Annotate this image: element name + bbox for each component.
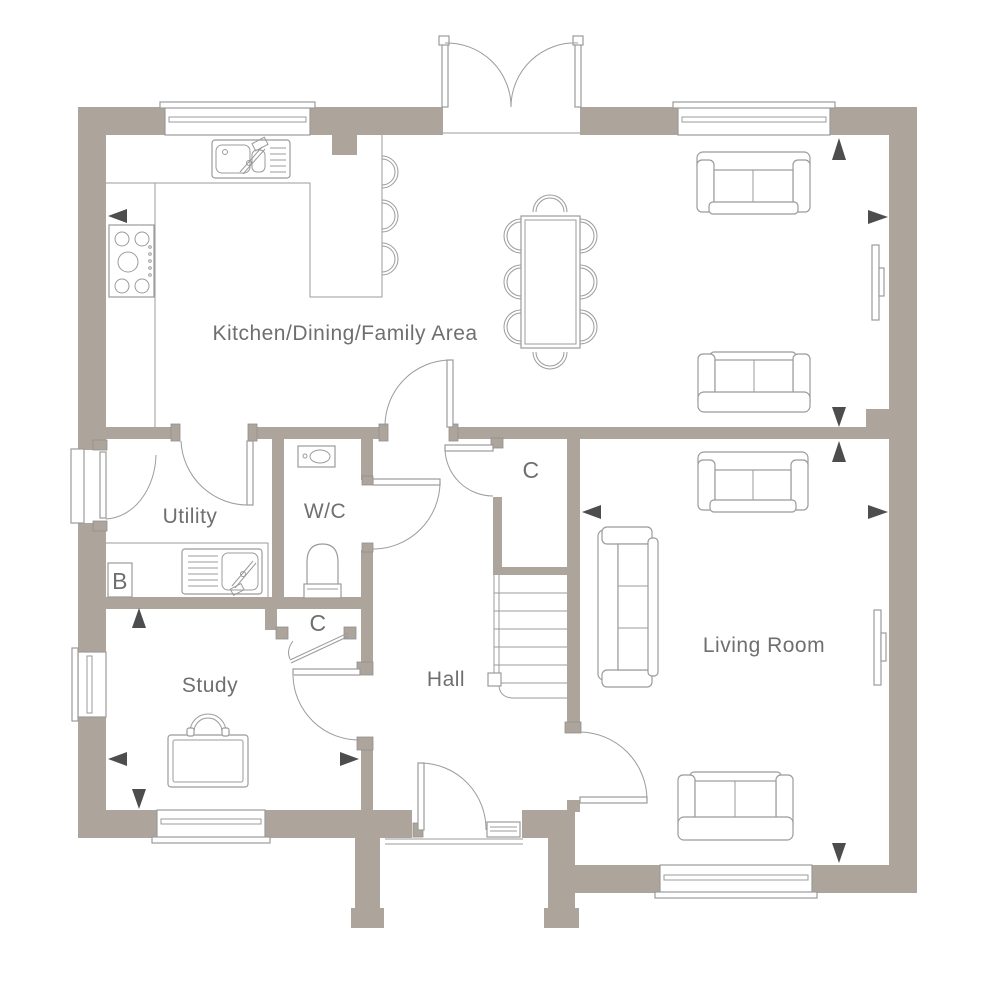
dimension-arrow-left-study [108,752,127,766]
study-door [293,662,373,750]
dimension-arrow-right-family [868,210,888,224]
dimension-arrow-down-living [832,843,846,863]
study-desk [168,735,248,787]
staircase [488,575,567,698]
french-doors [439,36,583,133]
dimension-arrow-left-living [582,505,601,519]
utility-sink [182,549,262,595]
stair-newel [488,673,501,686]
dimension-arrow-right-study [340,752,359,766]
hall-label: Hall [427,668,465,691]
study-label: Study [182,674,238,697]
wc-basin [298,446,335,467]
dimension-arrow-down-study [132,789,146,809]
family-tv [872,245,884,320]
kitchen-sink [212,137,290,178]
dimension-arrow-right-living [868,505,888,519]
dimension-arrow-down-family [832,407,846,427]
living-sofa-left [598,527,658,687]
living-room-label: Living Room [703,634,825,657]
utility-internal-door [171,424,257,505]
kitchen-window [160,102,315,135]
living-sofa-top [698,452,808,512]
kitchen-label: Kitchen/Dining/Family Area [212,322,477,345]
family-sofa-bottom [698,352,810,412]
living-room-door [565,722,647,803]
dimension-arrow-up-living [832,441,846,462]
study-cupboard-label: C [309,610,326,636]
wc-label: W/C [304,500,346,523]
family-area-window [673,102,835,135]
dimension-arrow-up-study [132,608,146,628]
family-sofa-top [697,152,810,214]
dimension-arrow-left-kitchen [108,209,127,223]
kitchen-hall-door [379,360,458,441]
doors [71,36,647,844]
study-chair [187,714,229,736]
study-side-window [72,648,106,721]
hob [109,225,154,297]
living-sofa-bottom [678,772,793,840]
living-tv [874,610,886,685]
stair-treads [494,593,567,683]
boiler-label: B [112,568,128,594]
hall-cupboard-label: C [522,457,539,483]
living-room-window [655,865,817,898]
utility-external-door [71,440,156,531]
study-front-window [152,810,270,843]
floor-plan-drawing: B Kitchen/Dining/Family [0,0,1000,1000]
dimension-arrow-up-family [832,138,846,160]
front-door-sidelight [487,822,520,837]
dining-table [504,195,597,369]
floor-plan-page: B Kitchen/Dining/Family [0,0,1000,1000]
boiler: B [108,563,132,597]
breakfast-bar-stools [382,156,398,275]
mid-wall-pier [866,409,890,427]
wc-toilet [304,544,341,598]
utility-label: Utility [163,505,218,528]
kitchen-pier [332,135,357,155]
hall-cupboard-door [445,438,503,496]
wc-door [362,476,440,552]
